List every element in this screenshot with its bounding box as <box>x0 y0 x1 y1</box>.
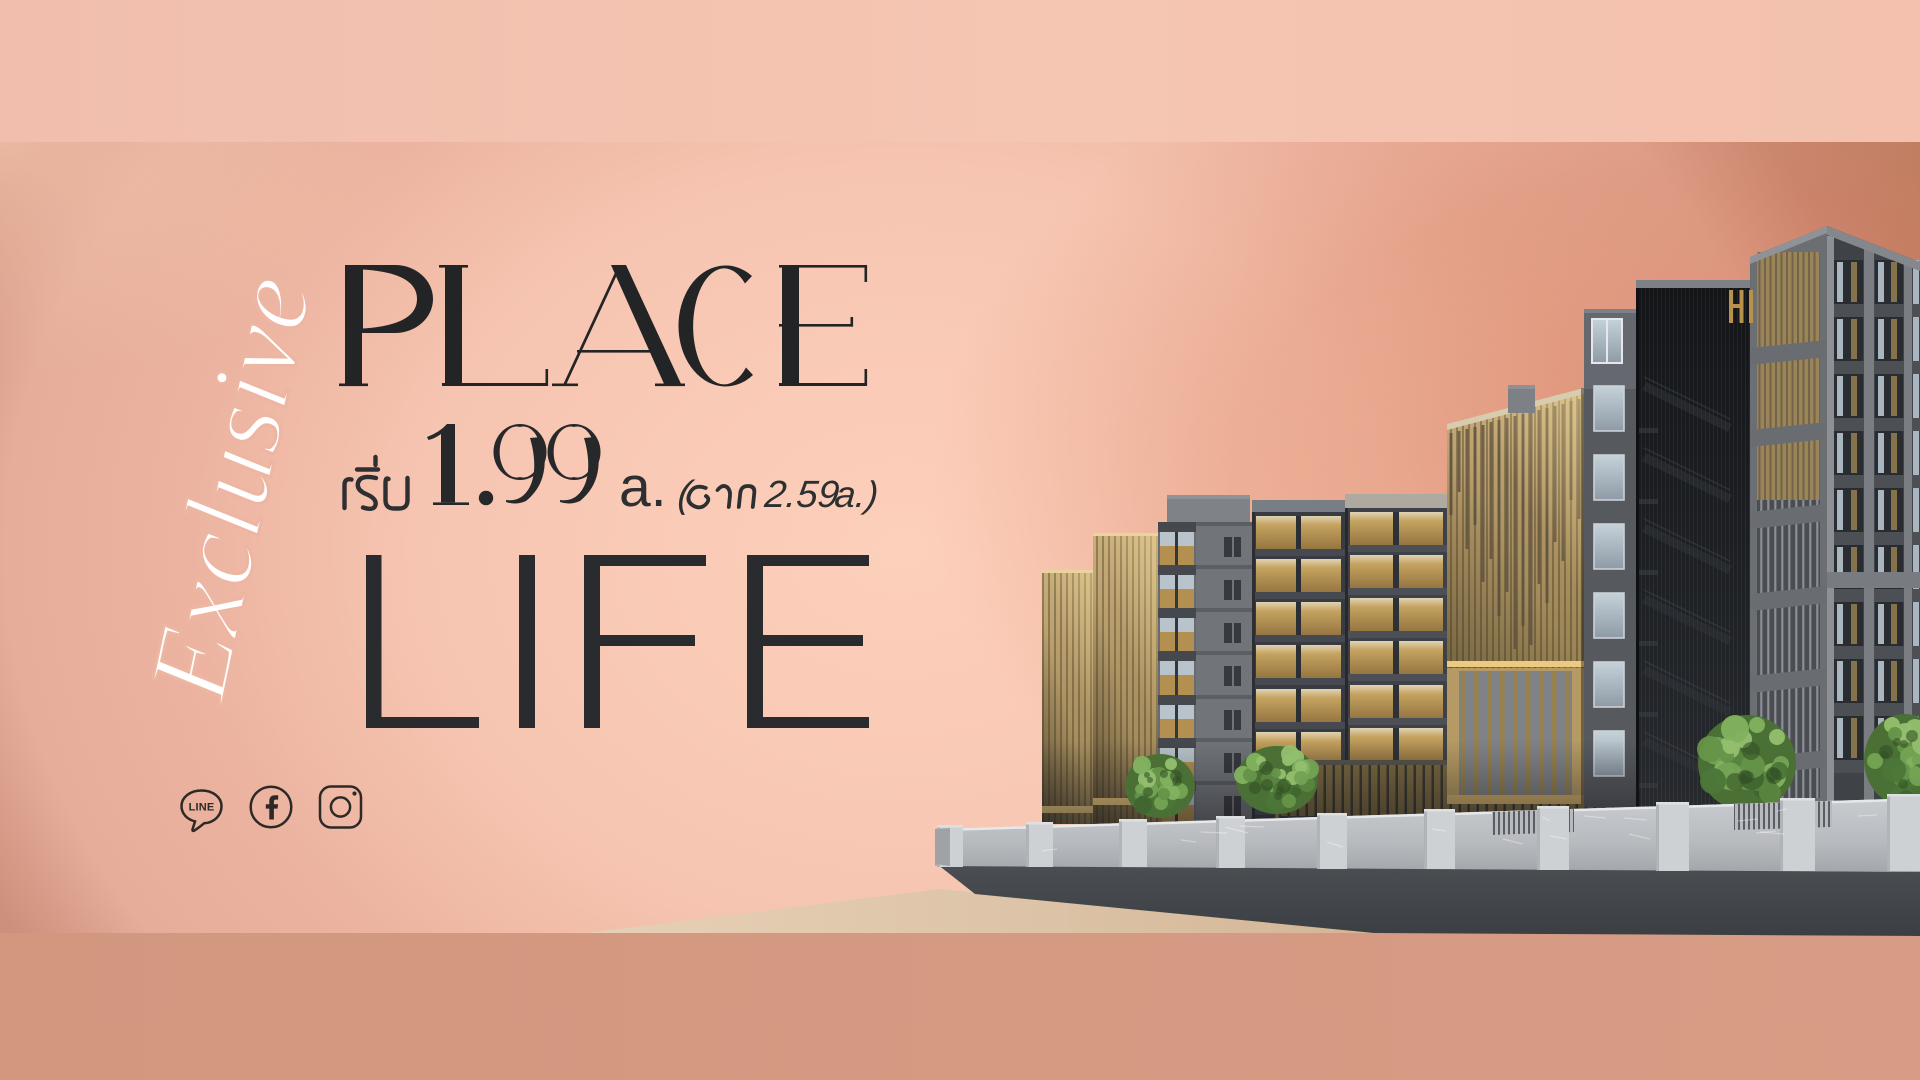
svg-text:a.: a. <box>619 455 667 519</box>
svg-text:(: ( <box>676 474 696 516</box>
svg-text:LINE: LINE <box>189 802 215 814</box>
svg-text:2.59: 2.59 <box>762 474 841 516</box>
svg-text:a.): a.) <box>833 473 881 515</box>
